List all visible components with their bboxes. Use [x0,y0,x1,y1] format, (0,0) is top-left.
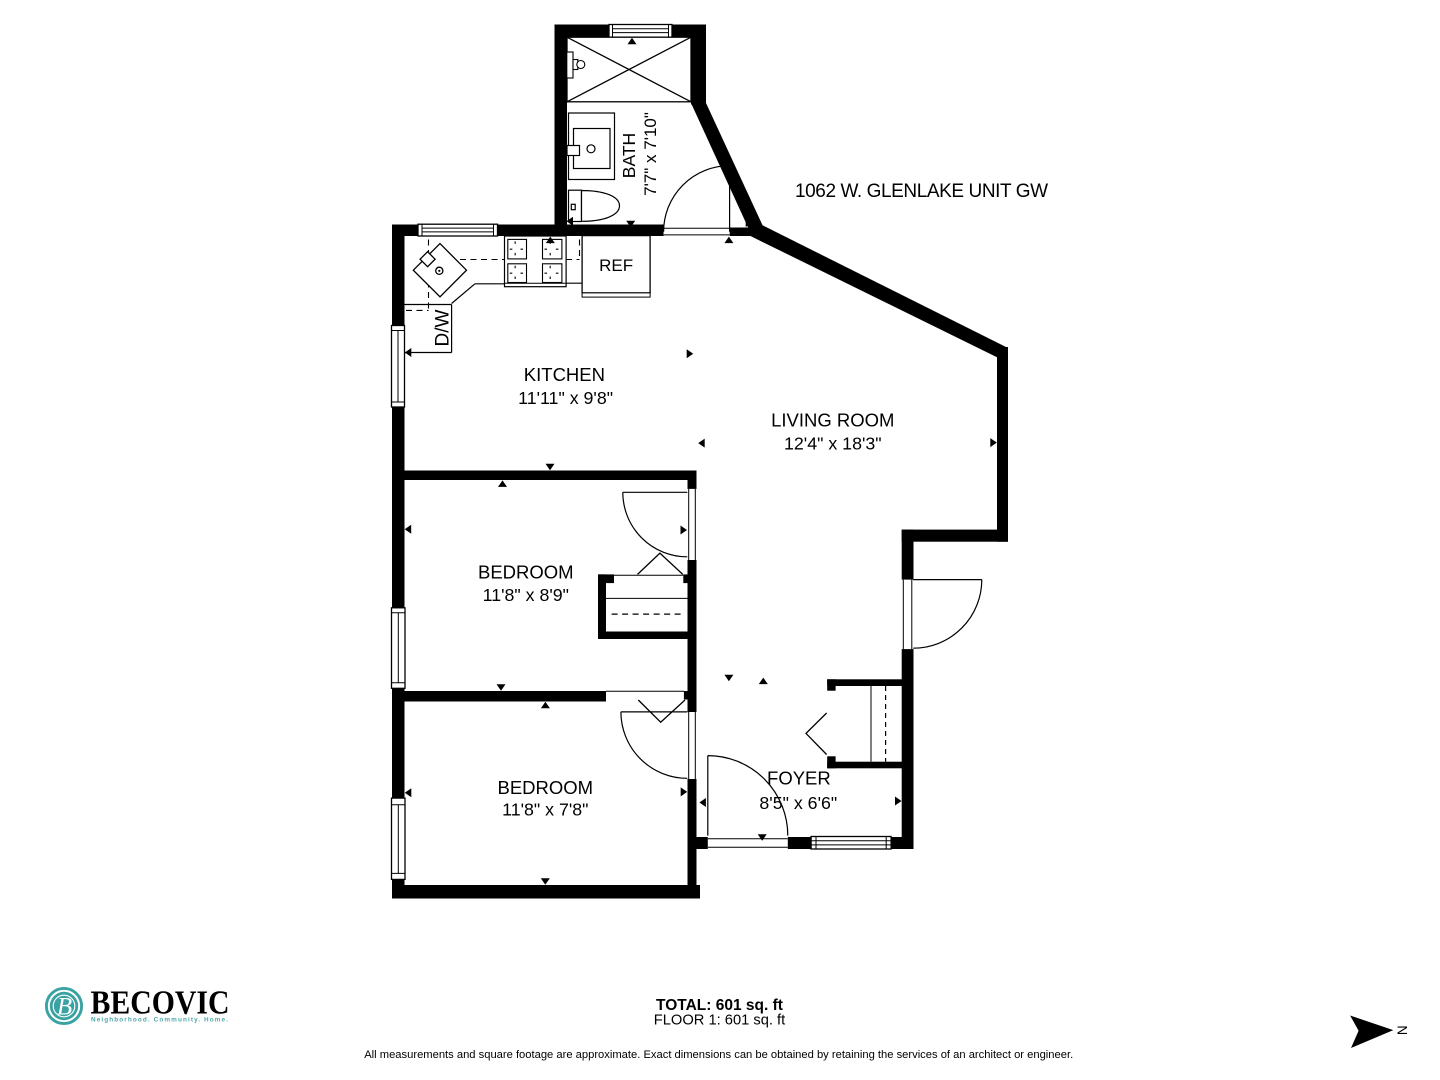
svg-text:LIVING ROOM: LIVING ROOM [771,410,894,431]
svg-text:11'8" x 8'9": 11'8" x 8'9" [483,585,569,605]
svg-text:11'8" x 7'8": 11'8" x 7'8" [502,800,588,820]
svg-text:1062 W. GLENLAKE UNIT GW: 1062 W. GLENLAKE UNIT GW [795,181,1048,202]
svg-text:BEDROOM: BEDROOM [498,777,594,798]
svg-text:BEDROOM: BEDROOM [478,561,574,582]
svg-text:Neighborhood. Community. Home.: Neighborhood. Community. Home. [91,1017,228,1024]
svg-text:N: N [1395,1025,1410,1035]
svg-text:KITCHEN: KITCHEN [524,364,605,385]
svg-text:FOYER: FOYER [767,767,831,788]
svg-text:BATH: BATH [619,133,639,178]
svg-text:12'4" x 18'3": 12'4" x 18'3" [784,434,882,454]
svg-text:All measurements and square fo: All measurements and square footage are … [364,1049,1073,1061]
svg-text:FLOOR 1: 601 sq. ft: FLOOR 1: 601 sq. ft [654,1012,785,1028]
svg-text:D/W: D/W [433,309,454,346]
svg-text:11'11" x 9'8": 11'11" x 9'8" [518,388,613,408]
svg-text:7'7" x 7'10": 7'7" x 7'10" [641,112,660,196]
svg-text:B: B [57,994,72,1021]
svg-text:8'5" x 6'6": 8'5" x 6'6" [759,793,837,813]
svg-text:REF: REF [599,256,633,275]
